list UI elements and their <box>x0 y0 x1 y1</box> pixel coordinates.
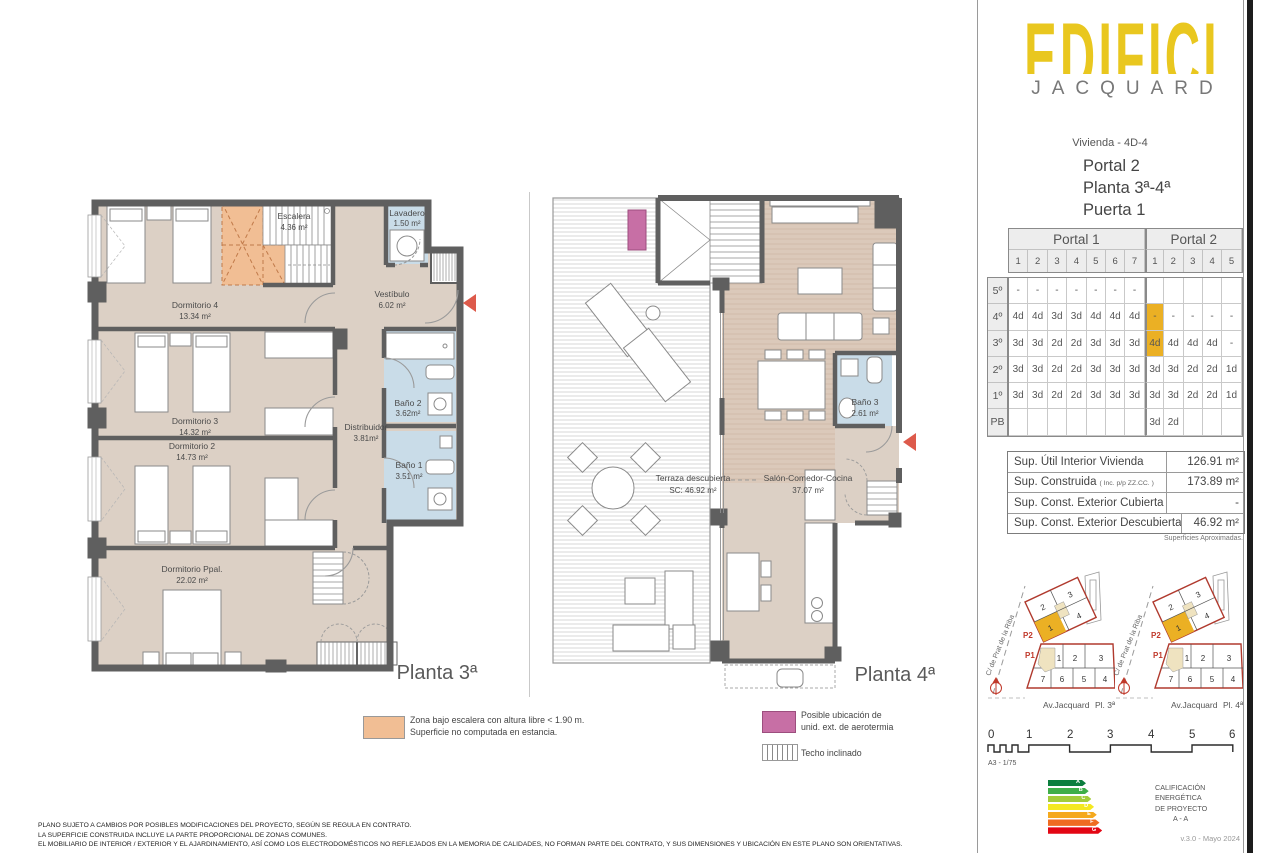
unit-code: Vivienda - 4D-4 <box>977 137 1243 149</box>
availability-cell: 4d <box>1125 304 1144 330</box>
availability-cell: 2d <box>1048 331 1067 357</box>
energy-caption-line1: CALIFICACIÓN <box>1155 783 1207 793</box>
availability-cell: 2d <box>1048 383 1067 409</box>
room-lavadero-name: Lavadero <box>389 208 425 218</box>
portal2-col-header: 2 <box>1164 250 1183 272</box>
surface-label-text: Sup. Const. Exterior Descubierta <box>1014 517 1181 529</box>
legend-pink-line2: unid. ext. de aerotermia <box>801 721 893 733</box>
legend-striped-text: Techo inclinado <box>801 747 862 759</box>
portal1-col-header: 2 <box>1028 250 1047 272</box>
legend-pink-line1: Posible ubicación de <box>801 709 893 721</box>
plan-sheet: Dormitorio 4 13.34 m² Escalera 4.36 m² L… <box>0 0 1280 853</box>
availability-cell: 4d <box>1087 304 1106 330</box>
p1-unit: 2 <box>1201 654 1206 663</box>
plan3-title: Planta 3ª <box>397 662 478 684</box>
p1-unit: 4 <box>1103 675 1108 684</box>
surface-value: 46.92 m² <box>1181 514 1244 534</box>
street-label: C/ de Prat de la Riba <box>1113 614 1144 677</box>
surface-row: Sup. Const. Exterior Descubierta46.92 m² <box>1008 514 1244 534</box>
version-text: v.3.0 - Mayo 2024 <box>1130 834 1240 843</box>
energy-band-letter: E <box>1087 812 1091 818</box>
availability-cell: 2d <box>1184 383 1203 409</box>
map-floor-caption: Pl. 4ª <box>1223 700 1243 710</box>
room-bano3-area: 2.61 m² <box>851 409 878 418</box>
availability-cell: 3d <box>1048 304 1067 330</box>
scale-tick: 0 <box>988 729 994 741</box>
availability-cell: 3d <box>1009 357 1028 383</box>
room-escalera-area: 4.36 m² <box>280 223 307 232</box>
portal2-col-header: 1 <box>1145 250 1164 272</box>
portal1-col-header: 3 <box>1048 250 1067 272</box>
availability-cell: - <box>1048 278 1067 304</box>
surface-value: - <box>1166 493 1244 513</box>
surface-label-text: Sup. Útil Interior Vivienda <box>1014 456 1144 468</box>
energy-band-G: G <box>1048 827 1102 833</box>
availability-cell: 3d <box>1009 383 1028 409</box>
legend-pink-text: Posible ubicación de unid. ext. de aerot… <box>801 709 893 733</box>
availability-cell: 2d <box>1203 383 1222 409</box>
availability-cell <box>1028 409 1047 435</box>
floorplan-planta-3: Dormitorio 4 13.34 m² Escalera 4.36 m² L… <box>85 190 480 685</box>
legend-pink-swatch <box>762 711 796 733</box>
energy-band-letter: D <box>1084 804 1088 810</box>
floorplan-planta-4: Terraza descubierta SC: 46.92 m² Salón-C… <box>525 183 935 698</box>
availability-cell: 2d <box>1067 383 1086 409</box>
availability-cell: 3d <box>1125 383 1144 409</box>
energy-band-A: A <box>1048 780 1086 786</box>
availability-cell <box>1222 409 1241 435</box>
p2-label: P2 <box>1151 631 1161 640</box>
availability-cell: 3d <box>1164 357 1183 383</box>
availability-cell: 3d <box>1145 357 1164 383</box>
availability-cell: 3d <box>1164 383 1183 409</box>
availability-cell <box>1222 278 1241 304</box>
p1-unit: 4 <box>1231 675 1236 684</box>
availability-cell: 3d <box>1106 357 1125 383</box>
surface-row: Sup. Construida( Inc. p/p ZZ.CC. )173.89… <box>1008 473 1244 494</box>
availability-cell: 2d <box>1048 357 1067 383</box>
disclaimer: PLANO SUJETO A CAMBIOS POR POSIBLES MODI… <box>38 821 978 850</box>
surface-label: Sup. Útil Interior Vivienda <box>1008 456 1166 468</box>
floor-label: 1º <box>988 383 1007 409</box>
legend-orange-swatch <box>363 716 405 739</box>
portal-2-header: Portal 2 <box>1145 229 1242 250</box>
portal1-col-header: 1 <box>1009 250 1028 272</box>
scale-label: A3 - 1/75 <box>988 760 1017 767</box>
availability-cell <box>1087 409 1106 435</box>
availability-cell: 2d <box>1184 357 1203 383</box>
availability-cell <box>1203 409 1222 435</box>
availability-cell: 2d <box>1067 331 1086 357</box>
energy-band-E: E <box>1048 812 1097 818</box>
sidebar-right-border <box>1243 0 1244 853</box>
energy-band-B: B <box>1048 788 1089 794</box>
surface-label: Sup. Const. Exterior Descubierta <box>1008 517 1181 529</box>
energy-band-letter: F <box>1090 820 1093 826</box>
portal1-col-header: 7 <box>1125 250 1144 272</box>
availability-cell <box>1184 409 1203 435</box>
availability-cell: 4d <box>1164 331 1183 357</box>
north-compass-icon <box>1119 678 1130 695</box>
siteplan-planta-3: C/ de Prat de la Riba 2 3 1 4 P2 1 2 3 7 <box>985 568 1115 720</box>
scale-bar: 0 1 2 3 4 5 6 A3 - 1/75 <box>985 726 1241 770</box>
scale-tick: 5 <box>1189 729 1195 741</box>
availability-cell <box>1106 409 1125 435</box>
sheet-edge-bar <box>1247 0 1253 853</box>
availability-cell <box>1125 409 1144 435</box>
room-bano1-area: 3.51 m² <box>395 472 422 481</box>
logo-jacquard-text: JACQUARD <box>1020 78 1224 100</box>
energy-rating: ABCDEFG CALIFICACIÓN ENERGÉTICA DE PROYE… <box>1048 780 1248 842</box>
room-vestibulo-name: Vestíbulo <box>375 289 410 299</box>
p1-unit: 3 <box>1099 654 1104 663</box>
room-dormitorio2-area: 14.73 m² <box>176 453 208 462</box>
p1-label: P1 <box>1153 651 1163 660</box>
energy-caption: CALIFICACIÓN ENERGÉTICA DE PROYECTO A - … <box>1155 783 1207 825</box>
availability-cell: 3d <box>1009 331 1028 357</box>
shaft-icon <box>431 251 458 283</box>
floor-label: 5º <box>988 278 1007 304</box>
surfaces-footnote: Superficies Aproximadas. <box>1007 535 1243 542</box>
surface-label: Sup. Construida( Inc. p/p ZZ.CC. ) <box>1008 476 1166 488</box>
legend-orange-line1: Zona bajo escalera con altura libre < 1.… <box>410 714 584 726</box>
availability-cell: 3d <box>1145 409 1164 435</box>
room-escalera-name: Escalera <box>277 211 310 221</box>
floor-label: PB <box>988 409 1007 435</box>
portal1-col-header: 5 <box>1087 250 1106 272</box>
energy-band-C: C <box>1048 796 1091 802</box>
room-vestibulo-area: 6.02 m² <box>378 301 405 310</box>
room-terraza-area: SC: 46.92 m² <box>669 486 716 495</box>
availability-cell: 3d <box>1087 383 1106 409</box>
availability-cell: 4d <box>1106 304 1125 330</box>
availability-cell: 3d <box>1087 331 1106 357</box>
room-bano3-name: Baño 3 <box>852 397 879 407</box>
portal2-col-header: 5 <box>1222 250 1241 272</box>
availability-table: Portal 1Portal 2123456712345 5º4º3º2º1ºP… <box>987 228 1243 438</box>
availability-cell: - <box>1125 278 1144 304</box>
energy-band-letter: C <box>1081 796 1085 802</box>
portal1-block: 1 2 3 7 6 5 4 <box>1155 644 1243 688</box>
disclaimer-line: PLANO SUJETO A CAMBIOS POR POSIBLES MODI… <box>38 821 978 831</box>
availability-cell: - <box>1009 278 1028 304</box>
availability-cell <box>1164 278 1183 304</box>
availability-cell: 4d <box>1145 331 1164 357</box>
disclaimer-line: LA SUPERFICIE CONSTRUIDA INCLUYE LA PART… <box>38 831 978 841</box>
availability-cell <box>1048 409 1067 435</box>
portal-1-header: Portal 1 <box>1009 229 1145 250</box>
energy-caption-line3: DE PROYECTO <box>1155 804 1207 814</box>
portal2-col-header: 3 <box>1184 250 1203 272</box>
unit-planta: Planta 3ª-4ª <box>1083 177 1170 199</box>
legend-orange-line2: Superficie no computada en estancia. <box>410 726 584 738</box>
scale-tick: 1 <box>1026 729 1032 741</box>
availability-cell: 4d <box>1203 331 1222 357</box>
availability-cell: 3d <box>1067 304 1086 330</box>
p1-label: P1 <box>1025 651 1035 660</box>
availability-cell: 3d <box>1125 357 1144 383</box>
availability-cell: 2d <box>1203 357 1222 383</box>
availability-cell: 3d <box>1028 357 1047 383</box>
map-street-caption: Av.Jacquard <box>1171 700 1218 710</box>
energy-arrows: ABCDEFG <box>1048 780 1248 834</box>
portal1-col-header: 4 <box>1067 250 1086 272</box>
stair-block <box>658 198 762 283</box>
p1-unit: 2 <box>1073 654 1078 663</box>
room-dormitorio3-name: Dormitorio 3 <box>172 416 219 426</box>
p1-unit: 6 <box>1188 675 1193 684</box>
surface-row: Sup. Útil Interior Vivienda126.91 m² <box>1008 452 1244 473</box>
entrance-arrow-icon <box>463 294 476 312</box>
room-dormitorio4-area: 13.34 m² <box>179 312 211 321</box>
portal2-col-header: 4 <box>1203 250 1222 272</box>
floor-label: 3º <box>988 331 1007 357</box>
room-ppal-area: 22.02 m² <box>176 576 208 585</box>
availability-cell: 3d <box>1028 331 1047 357</box>
availability-cell: - <box>1164 304 1183 330</box>
room-dormitorio2-name: Dormitorio 2 <box>169 441 216 451</box>
room-distribuidor-area: 3.81m² <box>354 434 379 443</box>
scale-tick: 2 <box>1067 729 1073 741</box>
p1-unit: 5 <box>1082 675 1087 684</box>
availability-cell: 3d <box>1125 331 1144 357</box>
surface-label-text: Sup. Const. Exterior Cubierta <box>1014 497 1164 509</box>
availability-floors: 5º4º3º2º1ºPB <box>987 277 1008 437</box>
availability-cell: - <box>1106 278 1125 304</box>
availability-cell <box>1203 278 1222 304</box>
availability-cell <box>1009 409 1028 435</box>
room-dormitorio3-area: 14.32 m² <box>179 428 211 437</box>
room-bano2-name: Baño 2 <box>395 398 422 408</box>
surface-label-note: ( Inc. p/p ZZ.CC. ) <box>1099 480 1153 487</box>
unit-info: Portal 2 Planta 3ª-4ª Puerta 1 <box>1083 155 1170 221</box>
availability-cell: 4d <box>1009 304 1028 330</box>
availability-cell: 3d <box>1087 357 1106 383</box>
p1-unit: 6 <box>1060 675 1065 684</box>
energy-caption-rating: A - A <box>1155 814 1207 824</box>
legend-orange-text: Zona bajo escalera con altura libre < 1.… <box>410 714 584 738</box>
unit-portal: Portal 2 <box>1083 155 1170 177</box>
availability-cell: 3d <box>1106 383 1125 409</box>
room-bano1-name: Baño 1 <box>396 460 423 470</box>
availability-cell: 1d <box>1222 357 1241 383</box>
scale-tick: 3 <box>1107 729 1113 741</box>
energy-band-letter: G <box>1092 828 1096 834</box>
availability-cell: - <box>1203 304 1222 330</box>
availability-cell: - <box>1087 278 1106 304</box>
sidebar-left-border <box>977 0 978 853</box>
room-distribuidor-name: Distribuidor <box>345 422 388 432</box>
availability-cell: 4d <box>1028 304 1047 330</box>
aerotermia-zone <box>628 210 646 250</box>
surface-label: Sup. Const. Exterior Cubierta <box>1008 497 1166 509</box>
room-salon-area: 37.07 m² <box>792 486 824 495</box>
availability-cell: 2d <box>1067 357 1086 383</box>
energy-band-letter: A <box>1076 780 1080 786</box>
availability-cell <box>1184 278 1203 304</box>
availability-cell: - <box>1222 331 1241 357</box>
availability-cell: - <box>1184 304 1203 330</box>
portal1-block: 1 2 3 7 6 5 4 <box>1027 644 1115 688</box>
surface-value: 126.91 m² <box>1166 452 1244 472</box>
north-compass-icon <box>991 678 1002 695</box>
room-salon-name: Salón-Comedor-Cocina <box>764 473 853 483</box>
plan4-title: Planta 4ª <box>855 664 935 686</box>
availability-cell: 4d <box>1184 331 1203 357</box>
availability-cell: 2d <box>1164 409 1183 435</box>
surface-row: Sup. Const. Exterior Cubierta- <box>1008 493 1244 514</box>
p1-unit: 7 <box>1169 675 1174 684</box>
logo: EDIFICI JACQUARD <box>1002 6 1242 136</box>
disclaimer-line: EL MOBILIARIO DE INTERIOR / EXTERIOR Y E… <box>38 840 978 850</box>
p1-unit: 3 <box>1227 654 1232 663</box>
availability-cell: 1d <box>1222 383 1241 409</box>
scale-tick: 6 <box>1229 729 1235 741</box>
availability-body: -------4d4d3d3d4d4d4d-----3d3d2d2d3d3d3d… <box>1008 277 1243 437</box>
p1-unit: 1 <box>1057 654 1062 663</box>
surfaces-table: Sup. Útil Interior Vivienda126.91 m²Sup.… <box>1007 451 1245 534</box>
p1-unit: 1 <box>1185 654 1190 663</box>
p1-unit: 7 <box>1041 675 1046 684</box>
room-ppal-name: Dormitorio Ppal. <box>162 564 223 574</box>
availability-cell: 3d <box>1145 383 1164 409</box>
legend-striped-swatch <box>762 744 798 761</box>
floor-label: 4º <box>988 304 1007 330</box>
surface-label-text: Sup. Construida <box>1014 476 1096 488</box>
availability-cell <box>1067 409 1086 435</box>
availability-cell: - <box>1028 278 1047 304</box>
unit-puerta: Puerta 1 <box>1083 199 1170 221</box>
availability-cell <box>1145 278 1164 304</box>
room-dormitorio4-name: Dormitorio 4 <box>172 300 219 310</box>
room-bano2-area: 3.62m² <box>396 409 421 418</box>
scale-tick: 4 <box>1148 729 1155 741</box>
surface-value: 173.89 m² <box>1166 473 1244 493</box>
p2-label: P2 <box>1023 631 1033 640</box>
availability-cell: 3d <box>1028 383 1047 409</box>
availability-cell: 3d <box>1106 331 1125 357</box>
availability-cell: - <box>1222 304 1241 330</box>
energy-band-D: D <box>1048 804 1094 810</box>
energy-band-letter: B <box>1079 788 1083 794</box>
map-street-caption: Av.Jacquard <box>1043 700 1090 710</box>
street-label: C/ de Prat de la Riba <box>985 614 1016 677</box>
energy-band-F: F <box>1048 819 1100 825</box>
energy-caption-line2: ENERGÉTICA <box>1155 793 1207 803</box>
floor-label: 2º <box>988 357 1007 383</box>
portal1-col-header: 6 <box>1106 250 1125 272</box>
availability-cell: - <box>1067 278 1086 304</box>
p1-unit: 5 <box>1210 675 1215 684</box>
room-lavadero-area: 1.50 m² <box>393 219 420 228</box>
room-terraza-name: Terraza descubierta <box>656 473 731 483</box>
siteplan-planta-4: C/ de Prat de la Riba 2 3 1 4 P2 1 2 3 7 <box>1113 568 1243 720</box>
availability-cell: - <box>1145 304 1164 330</box>
map-floor-caption: Pl. 3ª <box>1095 700 1115 710</box>
availability-header: Portal 1Portal 2123456712345 <box>1008 228 1243 273</box>
logo-band: JACQUARD <box>1002 74 1242 104</box>
entrance-arrow-icon-4 <box>903 433 916 451</box>
